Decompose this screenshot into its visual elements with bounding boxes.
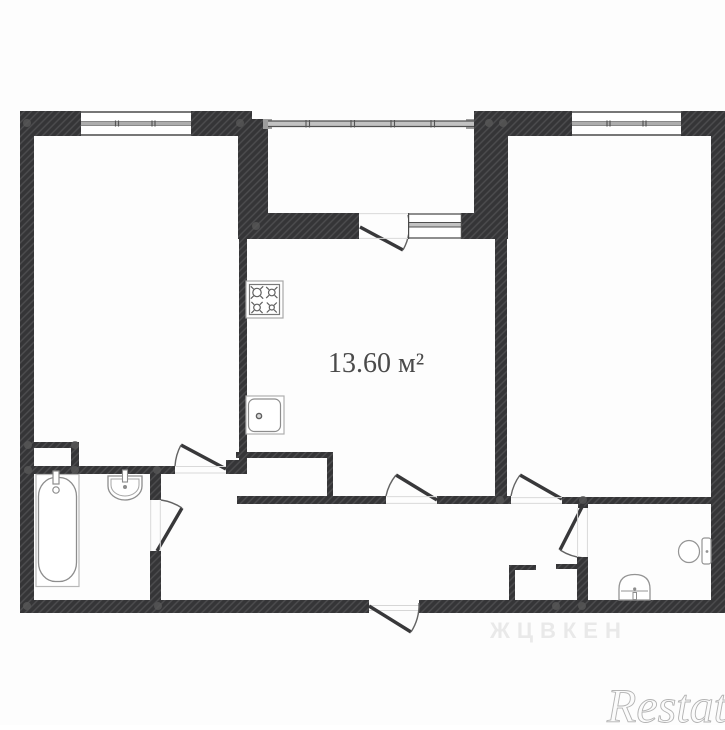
svg-text:ЖЦВКЕН: ЖЦВКЕН <box>489 618 628 643</box>
svg-text:Restate: Restate <box>606 680 725 725</box>
svg-text:13.60 м²: 13.60 м² <box>328 348 424 379</box>
